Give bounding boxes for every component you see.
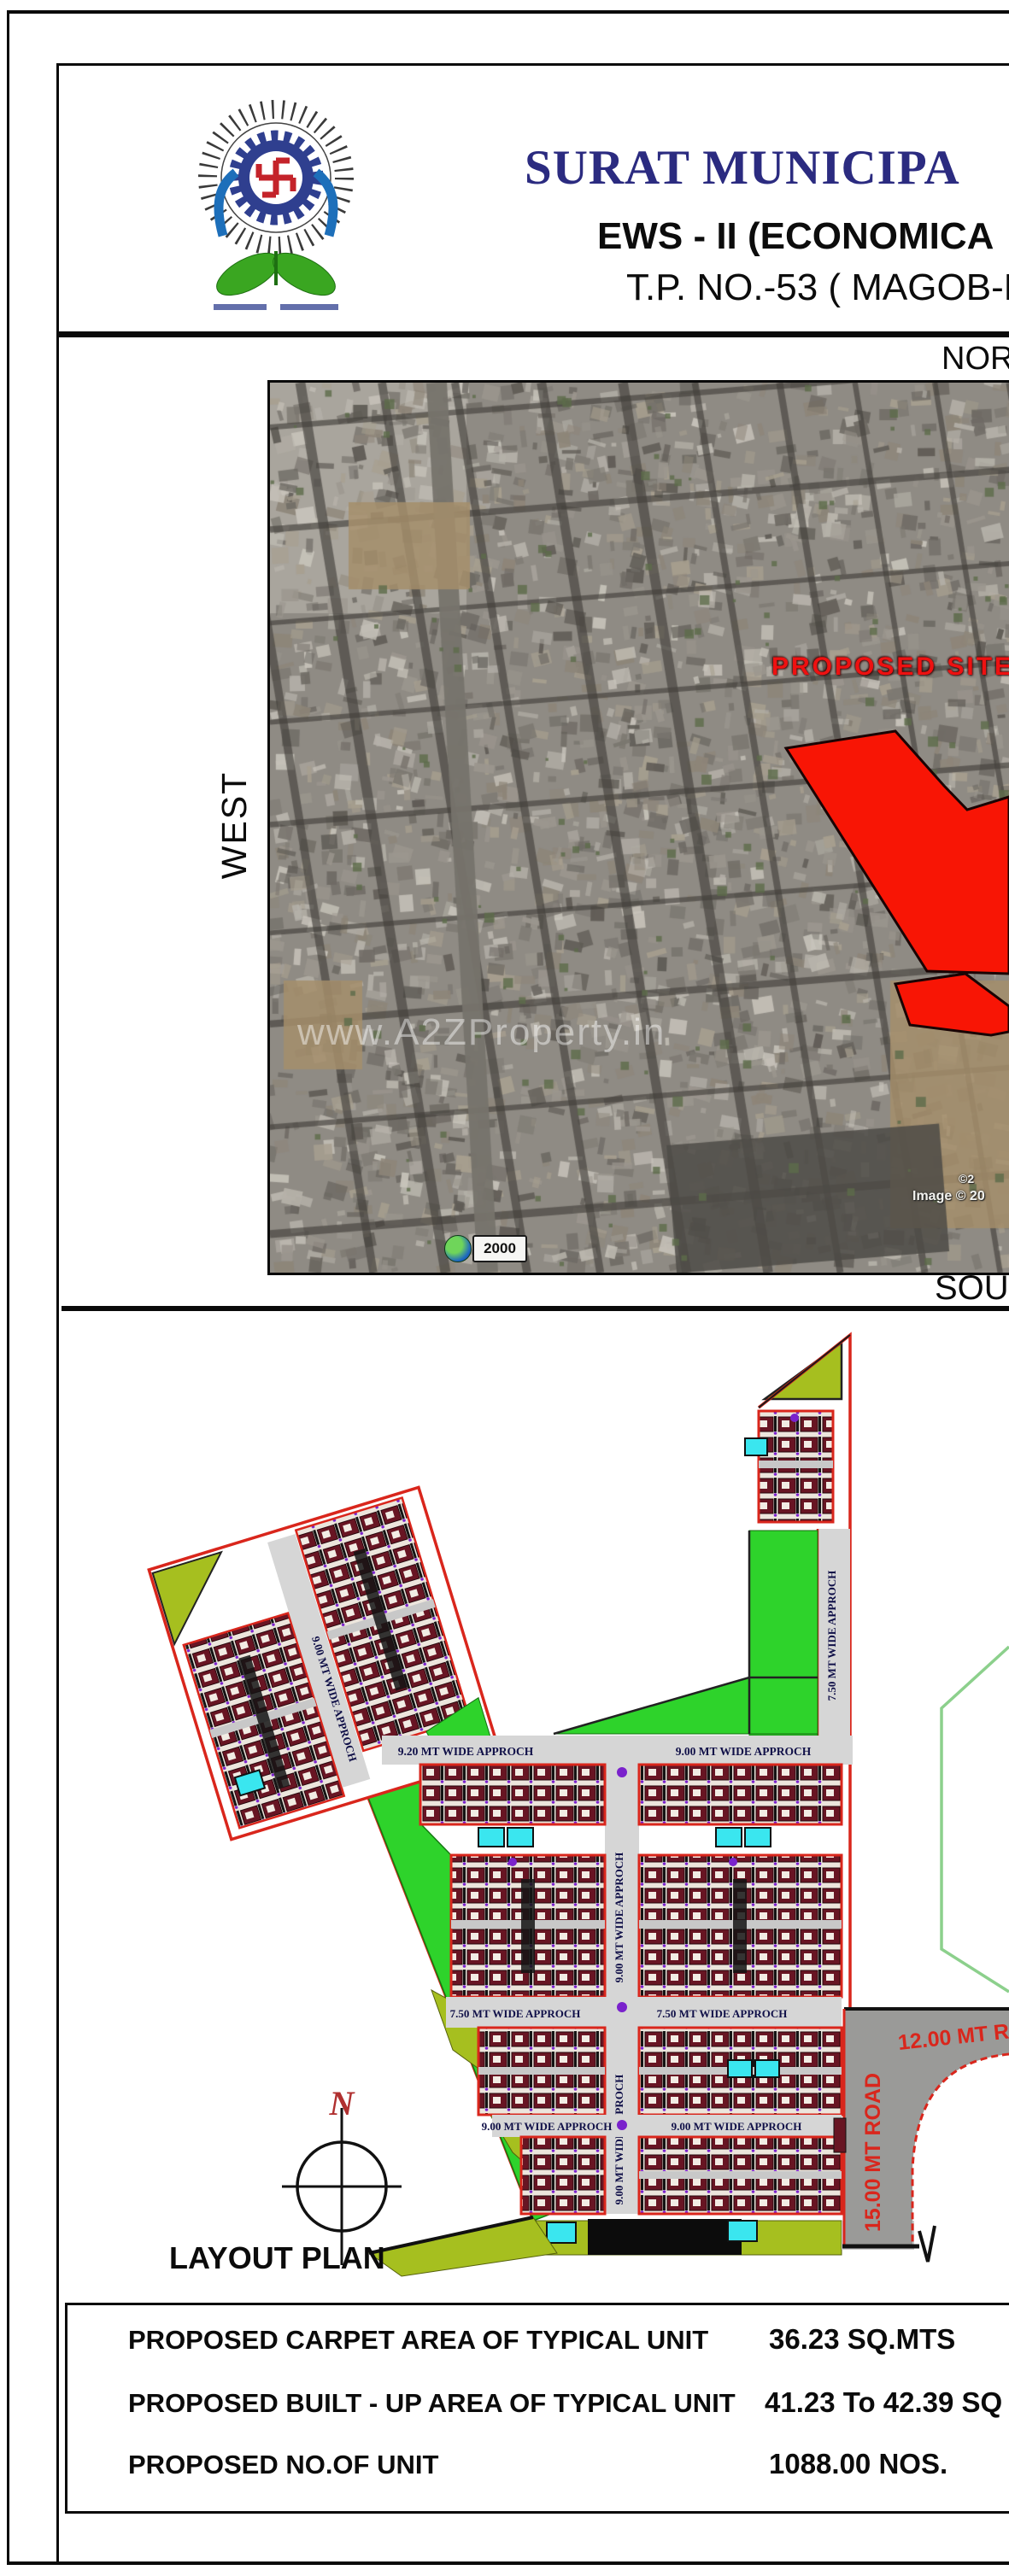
stair-core xyxy=(521,1879,535,1973)
water-tank xyxy=(478,1828,504,1847)
water-tank xyxy=(507,1828,533,1847)
water-tank xyxy=(728,2221,757,2241)
proposed-site-overlay xyxy=(267,380,1009,1270)
summary-row-value: 36.23 SQ.MTS xyxy=(769,2323,955,2356)
water-tank xyxy=(745,1828,771,1847)
layout-plan-title: LAYOUT PLAN xyxy=(169,2240,385,2275)
outer-border-bottom xyxy=(7,2561,1009,2565)
road-label-h3-right: 9.00 MT WIDE APPROCH xyxy=(672,2120,802,2133)
map-copyright: Image © 20 xyxy=(912,1189,985,1204)
stair-core xyxy=(733,1879,747,1973)
building-block xyxy=(420,1765,605,1824)
adjacent-plot-outline xyxy=(942,1647,1009,1992)
water-tank xyxy=(547,2222,576,2243)
road-label-vc-lower: 9.00 MT WIDE APPROCH xyxy=(613,2075,625,2205)
summary-row-value: 41.23 To 42.39 SQ xyxy=(765,2386,1002,2419)
summary-row-label: PROPOSED NO.OF UNIT xyxy=(128,2450,438,2480)
layout-plan-drawing: 9.00 MT WIDE APPROCH 9.20 MT WIDE APPROC… xyxy=(0,1308,1009,2299)
building-block xyxy=(639,1765,842,1824)
leaves-icon xyxy=(210,244,342,303)
compass: N xyxy=(282,2084,402,2265)
road-label-h3-left: 9.00 MT WIDE APPROCH xyxy=(482,2120,613,2133)
proposed-site-polygon-south xyxy=(895,974,1009,1035)
divider-title-map xyxy=(56,331,1009,337)
compass-north-label: N xyxy=(329,2084,356,2122)
summary-row-value: 1088.00 NOS. xyxy=(769,2448,947,2480)
outer-border-top xyxy=(7,10,1009,14)
title-box-top xyxy=(56,63,1009,66)
tp-scheme-subtitle: T.P. NO.-53 ( MAGOB-D xyxy=(626,266,1009,309)
scale-badge: 2000 xyxy=(472,1235,527,1262)
road-label-h1-left: 9.20 MT WIDE APPROCH xyxy=(398,1745,534,1758)
proposed-site-label: PROPOSED SITE xyxy=(771,653,1009,682)
corridor xyxy=(759,1461,833,1468)
org-title: SURAT MUNICIPA xyxy=(525,140,960,196)
smc-logo xyxy=(195,99,357,323)
lawn-diagonal xyxy=(554,1677,818,1734)
watermark: www.A2ZProperty.in xyxy=(297,1011,666,1054)
road-label-15mt: 15.00 MT ROAD xyxy=(861,2073,885,2232)
road-label-h1-right: 9.00 MT WIDE APPROCH xyxy=(676,1745,812,1758)
corridor xyxy=(639,2171,842,2179)
proposed-site-polygon xyxy=(786,731,1009,974)
road-label-h2-right: 7.50 MT WIDE APPROCH xyxy=(657,2007,788,2020)
road-label-vc-upper: 9.00 MT WIDE APPROCH xyxy=(613,1853,625,1983)
plan-sheet: SURAT MUNICIPA EWS - II (ECONOMICA T.P. … xyxy=(0,0,1009,2576)
summary-row-label: PROPOSED BUILT - UP AREA OF TYPICAL UNIT xyxy=(128,2388,736,2419)
direction-label-north: NORTH xyxy=(942,341,1009,378)
boundary-structure xyxy=(834,2118,846,2152)
road-label-h2-left: 7.50 MT WIDE APPROCH xyxy=(450,2007,581,2020)
road-label-v-right: 7.50 MT WIDE APPROCH xyxy=(825,1571,838,1701)
water-tank xyxy=(745,1438,767,1455)
water-tank xyxy=(728,2060,752,2077)
road-break-symbol xyxy=(919,2226,935,2262)
bottom-black-structure xyxy=(588,2219,742,2255)
direction-label-west: WEST xyxy=(214,740,259,910)
summary-row-label: PROPOSED CARPET AREA OF TYPICAL UNIT xyxy=(128,2325,708,2356)
map-logo-icon xyxy=(444,1235,472,1262)
building-block xyxy=(521,2137,605,2214)
water-tank xyxy=(755,2060,779,2077)
map-copyright-year: ©2 xyxy=(959,1172,974,1186)
scheme-title: EWS - II (ECONOMICA xyxy=(597,215,994,258)
corridor xyxy=(478,2067,605,2075)
water-tank xyxy=(716,1828,742,1847)
